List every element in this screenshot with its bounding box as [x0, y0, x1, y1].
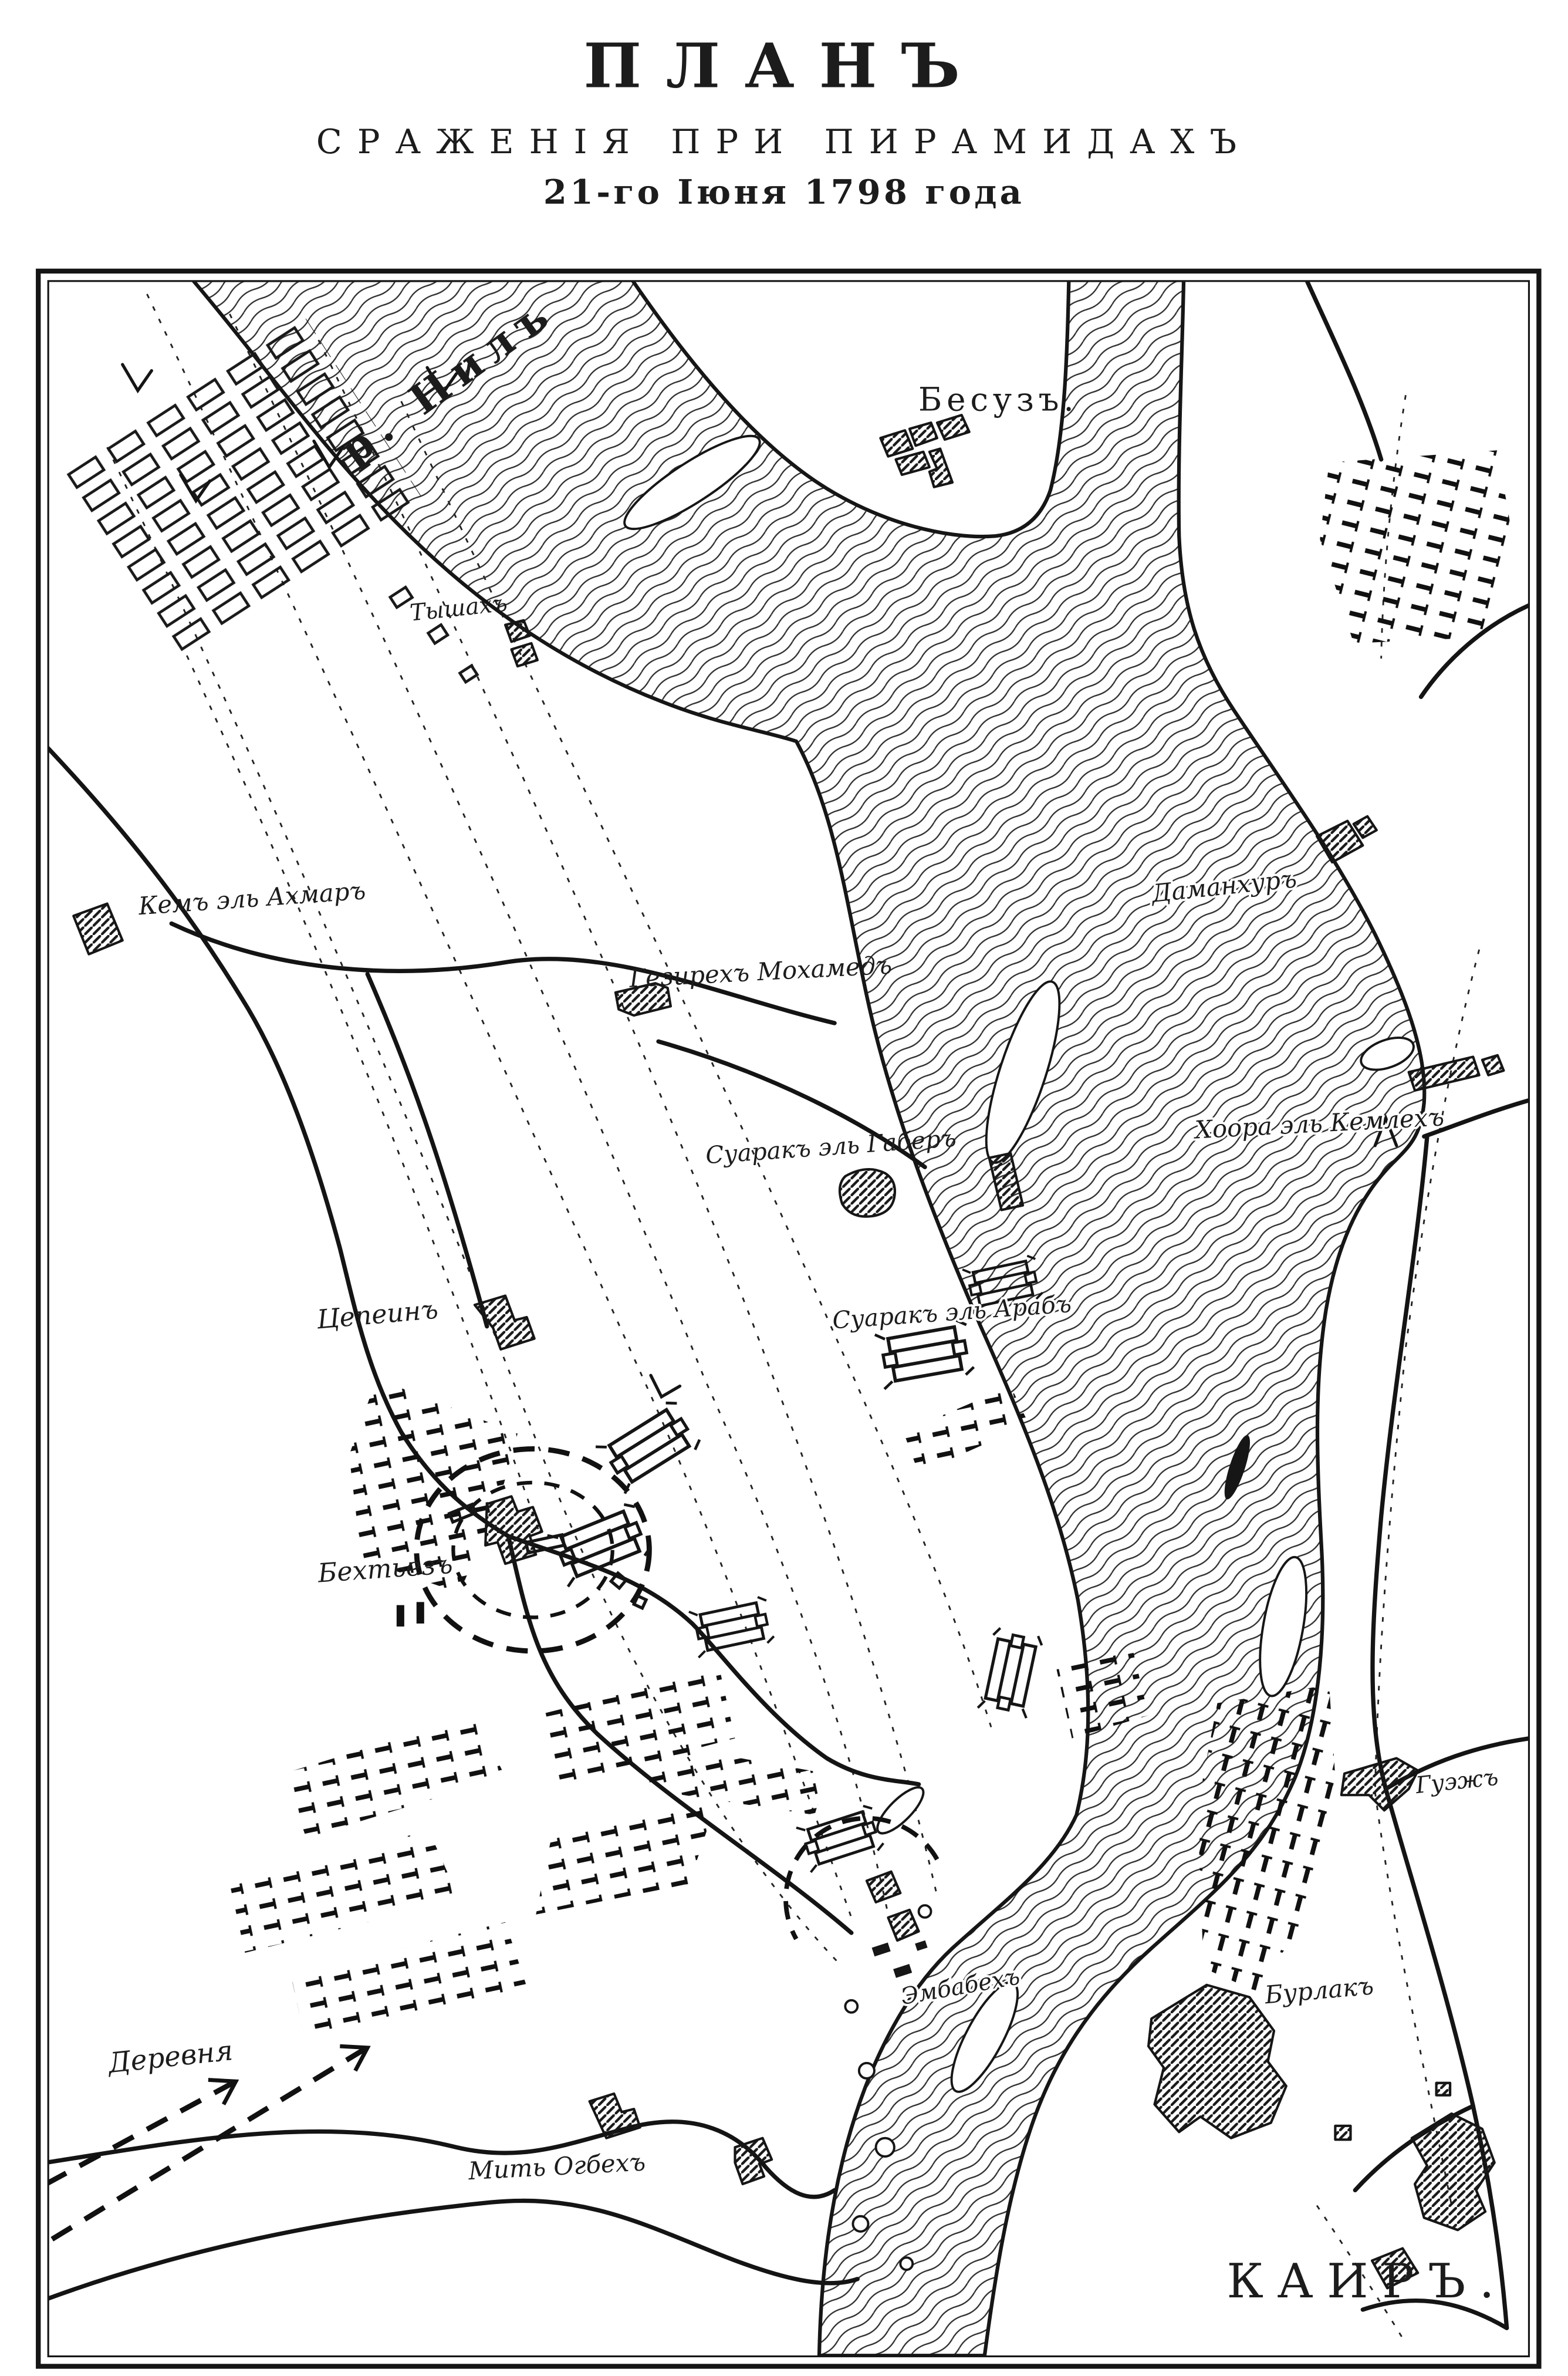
village-embabeh — [888, 1910, 918, 1940]
village-besuz — [880, 430, 913, 456]
river-island — [871, 1781, 930, 1840]
road — [367, 974, 487, 1327]
village-cairo — [1437, 2083, 1450, 2095]
label-burlak: Бурлакъ — [1263, 1971, 1374, 2009]
label-kem-el-ahmar: Кемъ эль Ахмаръ — [137, 876, 366, 920]
river-islet — [876, 2138, 894, 2156]
river-islet — [859, 2063, 874, 2078]
village-guezh — [1341, 1759, 1418, 1811]
village-besuz — [910, 423, 937, 446]
cavalry-cluster — [291, 1922, 528, 2045]
arrow-chevron — [123, 365, 152, 390]
cavalry-mark — [397, 1602, 424, 1626]
village-cairo — [1335, 2126, 1350, 2139]
village-embabeh — [867, 1872, 900, 1902]
march-route — [187, 656, 539, 1532]
cavalry-cluster — [643, 1743, 827, 1815]
village-bekhtyez — [485, 1496, 542, 1564]
cavalry-cluster — [283, 1716, 505, 1838]
village-tyshah — [512, 643, 538, 666]
cavalry-cluster — [229, 1830, 459, 1953]
village-small — [735, 2138, 772, 2184]
village-suarak-gaber — [840, 1169, 895, 1217]
camp-square — [428, 625, 448, 643]
village-besuz — [937, 415, 969, 440]
title-line1: ПЛАНЪ — [583, 30, 984, 102]
road — [43, 2200, 857, 2300]
river-islet — [919, 1905, 931, 1918]
label-tyshah: Тышахъ — [408, 590, 508, 626]
cavalry-cluster — [1198, 1685, 1336, 1991]
village-tsepein — [475, 1296, 535, 1349]
page: ПЛАНЪ СРАЖЕНІЯ ПРИ ПИРАМИДАХЪ 21-го Іюня… — [0, 0, 1568, 2376]
infantry-square — [596, 1398, 703, 1494]
cavalry-cluster — [904, 1386, 1029, 1473]
road — [46, 2122, 834, 2197]
village-besuz — [930, 449, 952, 487]
village-cairo — [1412, 2114, 1495, 2230]
title-line3: 21-го Іюня 1798 года — [543, 172, 1025, 212]
infantry-post — [634, 1596, 646, 1608]
village-khoora — [1482, 1055, 1504, 1075]
title-line2: СРАЖЕНІЯ ПРИ ПИРАМИДАХЪ — [316, 122, 1252, 161]
river-islet — [853, 2216, 868, 2232]
river-islet — [845, 2000, 857, 2013]
label-cairo: КАИРЪ. — [1226, 2254, 1508, 2309]
house-block — [915, 1940, 927, 1951]
label-besuz: Бесузъ. — [918, 380, 1079, 418]
battle-map: ПЛАНЪ СРАЖЕНІЯ ПРИ ПИРАМИДАХЪ 21-го Іюня… — [0, 0, 1568, 2375]
village-mit-ogbeh — [590, 2094, 640, 2138]
arrow-chevron — [651, 1375, 680, 1397]
river-islet — [900, 2257, 913, 2270]
cavalry-cluster — [536, 1792, 719, 1915]
village-tyshah — [505, 620, 530, 642]
camp-square — [460, 666, 478, 682]
embabeh-houses — [872, 1940, 928, 1978]
label-derevnya: Деревня — [106, 2034, 235, 2080]
dashed-arrow — [46, 2083, 232, 2184]
title-block: ПЛАНЪ СРАЖЕНІЯ ПРИ ПИРАМИДАХЪ 21-го Іюня… — [316, 30, 1252, 212]
cavalry-cluster — [1320, 450, 1513, 643]
infantry-square — [689, 1595, 775, 1658]
house-block — [872, 1942, 891, 1956]
village-besuz — [895, 452, 929, 475]
label-gezireh: Гезирехъ Мохамедъ — [628, 950, 893, 993]
village-kem-el-ahmar — [73, 904, 123, 954]
infantry-square — [978, 1627, 1043, 1718]
road — [1305, 276, 1381, 460]
label-tsepein: Цепеинъ — [315, 1295, 440, 1335]
house-block — [893, 1964, 912, 1978]
dashed-arrow — [52, 2049, 364, 2239]
advance-arrows — [46, 2046, 367, 2239]
